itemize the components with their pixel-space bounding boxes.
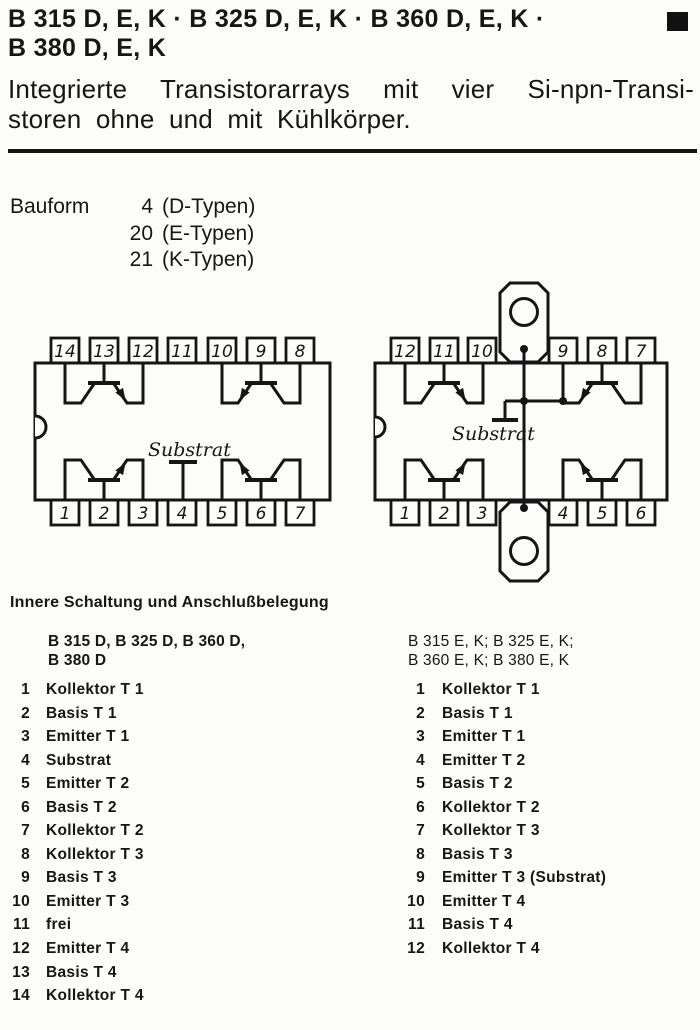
pin-number: 9 — [390, 869, 425, 887]
pinout-diagrams: 141312111098 1234567 Substrat — [0, 270, 700, 590]
bauform-block: Bauform 4 (D-Typen) 20 (E-Typen) 21 (K-T… — [10, 194, 255, 274]
pin-number: 11 — [8, 916, 30, 934]
pin-box-number: 3 — [138, 504, 149, 524]
subtitle-line-1: Integrierte Transistorarrays mit vier Si… — [8, 75, 694, 105]
heatsink-package-diagram: 121110987 123456 Substrat — [375, 283, 667, 581]
left-column-title: B 315 D, B 325 D, B 360 D, B 380 D — [48, 633, 245, 670]
pin-row: 8Kollektor T 3 — [8, 846, 144, 870]
pin-label: Basis T 2 — [442, 775, 513, 793]
pin-label: Basis T 1 — [442, 705, 513, 723]
pin-number: 12 — [8, 940, 30, 958]
pin-row: 9Emitter T 3 (Substrat) — [390, 869, 606, 893]
pin-box-number: 4 — [558, 504, 569, 524]
pin-label: Substrat — [46, 752, 111, 770]
pin-label: Emitter T 1 — [442, 728, 525, 746]
bauform-type: (E-Typen) — [162, 221, 254, 248]
pin-box-number: 3 — [477, 504, 488, 524]
title-line-2: B 380 D, E, K — [8, 34, 668, 63]
pin-box-number: 10 — [211, 342, 233, 362]
pin-label: Emitter T 3 — [46, 893, 129, 911]
pin-row: 9Basis T 3 — [8, 869, 144, 893]
pin-number: 2 — [8, 705, 30, 723]
pin-label: Kollektor T 1 — [442, 681, 540, 699]
pin-box-number: 12 — [394, 342, 416, 362]
title-line-1: B 315 D, E, K · B 325 D, E, K · B 360 D,… — [8, 5, 668, 34]
pin-assignment-list-ek-types: 1Kollektor T 12Basis T 13Emitter T 14Emi… — [390, 681, 606, 964]
pin-row: 8Basis T 3 — [390, 846, 606, 870]
pin-row: 12Emitter T 4 — [8, 940, 144, 964]
pin-number: 5 — [390, 775, 425, 793]
pin-box-number: 8 — [295, 342, 306, 362]
pin-box-number: 5 — [597, 504, 608, 524]
pin-label: Kollektor T 2 — [442, 799, 540, 817]
pin-row: 6Kollektor T 2 — [390, 799, 606, 823]
dip14-package-diagram: 141312111098 1234567 Substrat — [35, 338, 330, 525]
orientation-notch — [35, 416, 46, 438]
right-column-title-line-2: B 360 E, K; B 380 E, K — [408, 652, 574, 671]
pin-row: 1Kollektor T 1 — [8, 681, 144, 705]
pin-box-number: 7 — [295, 504, 306, 524]
pin-box-number: 1 — [400, 504, 411, 524]
pin-label: Emitter T 2 — [46, 775, 129, 793]
pin-row-top: 141312111098 — [51, 338, 314, 363]
pin-label: Basis T 2 — [46, 799, 117, 817]
pin-row: 7Kollektor T 3 — [390, 822, 606, 846]
pin-number: 5 — [8, 775, 30, 793]
bauform-row: 20 (E-Typen) — [127, 221, 255, 248]
pin-number: 3 — [390, 728, 425, 746]
pin-number: 10 — [390, 893, 425, 911]
pin-box-number: 13 — [93, 342, 115, 362]
pin-number: 4 — [390, 752, 425, 770]
pin-box-number: 10 — [471, 342, 493, 362]
section-heading: Innere Schaltung und Anschlußbelegung — [10, 594, 329, 612]
pin-number: 2 — [390, 705, 425, 723]
page-subtitle: Integrierte Transistorarrays mit vier Si… — [8, 75, 694, 134]
pin-number: 1 — [390, 681, 425, 699]
orientation-notch — [375, 417, 385, 437]
pin-row: 13Basis T 4 — [8, 964, 144, 988]
pin-number: 13 — [8, 964, 30, 982]
pin-label: Basis T 4 — [46, 964, 117, 982]
pin-row: 4Substrat — [8, 752, 144, 776]
left-column-title-line-2: B 380 D — [48, 652, 245, 671]
pin-row: 1Kollektor T 1 — [390, 681, 606, 705]
bauform-row: 4 (D-Typen) — [127, 194, 255, 221]
pin-box-number: 12 — [132, 342, 154, 362]
pin-box-number: 9 — [558, 342, 569, 362]
pin-label: Kollektor T 1 — [46, 681, 144, 699]
pin-row: 2Basis T 1 — [8, 705, 144, 729]
corner-marker — [667, 12, 688, 31]
pin-row: 6Basis T 2 — [8, 799, 144, 823]
bauform-label: Bauform — [10, 194, 127, 274]
pin-row: 3Emitter T 1 — [8, 728, 144, 752]
pin-label: Emitter T 4 — [442, 893, 525, 911]
pin-row: 7Kollektor T 2 — [8, 822, 144, 846]
pin-row: 11frei — [8, 916, 144, 940]
right-column-title-line-1: B 315 E, K; B 325 E, K; — [408, 633, 574, 652]
pin-label: Basis T 1 — [46, 705, 117, 723]
left-column-title-line-1: B 315 D, B 325 D, B 360 D, — [48, 633, 245, 652]
pin-number: 8 — [390, 846, 425, 864]
pin-label: Emitter T 1 — [46, 728, 129, 746]
pin-row: 12Kollektor T 4 — [390, 940, 606, 964]
pin-box-number: 1 — [60, 504, 71, 524]
pin-number: 7 — [390, 822, 425, 840]
bauform-rows: 4 (D-Typen) 20 (E-Typen) 21 (K-Typen) — [127, 194, 255, 274]
pin-row: 14Kollektor T 4 — [8, 987, 144, 1011]
pin-label: Kollektor T 4 — [442, 940, 540, 958]
pin-box-number: 6 — [636, 504, 647, 524]
pin-number: 8 — [8, 846, 30, 864]
pin-label: Kollektor T 3 — [46, 846, 144, 864]
pin-number: 6 — [8, 799, 30, 817]
pin-row: 4Emitter T 2 — [390, 752, 606, 776]
bauform-type: (D-Typen) — [162, 194, 255, 221]
pin-number: 4 — [8, 752, 30, 770]
pin-label: frei — [46, 916, 71, 934]
pin-box-number: 14 — [54, 342, 76, 362]
bauform-number: 4 — [127, 194, 153, 221]
pin-box-number: 9 — [256, 342, 267, 362]
pin-number: 1 — [8, 681, 30, 699]
pin-number: 9 — [8, 869, 30, 887]
pin-label: Emitter T 3 (Substrat) — [442, 869, 606, 887]
pin-box-number: 5 — [217, 504, 228, 524]
pin-label: Kollektor T 3 — [442, 822, 540, 840]
pin-row: 10Emitter T 3 — [8, 893, 144, 917]
substrate-label: Substrat — [148, 439, 231, 461]
pin-number: 7 — [8, 822, 30, 840]
right-column-title: B 315 E, K; B 325 E, K; B 360 E, K; B 38… — [408, 633, 574, 670]
pin-number: 3 — [8, 728, 30, 746]
pin-row: 2Basis T 1 — [390, 705, 606, 729]
pin-number: 14 — [8, 987, 30, 1005]
pin-box-number: 2 — [439, 504, 450, 524]
pin-box-number: 8 — [597, 342, 608, 362]
pin-row: 5Emitter T 2 — [8, 775, 144, 799]
pin-box-number: 6 — [256, 504, 267, 524]
pin-row: 11Basis T 4 — [390, 916, 606, 940]
pin-label: Emitter T 4 — [46, 940, 129, 958]
pin-box-number: 11 — [433, 342, 455, 362]
pin-row-bottom: 1234567 — [51, 500, 314, 525]
pin-box-number: 7 — [636, 342, 647, 362]
heatsink-tab-bottom — [500, 502, 548, 581]
divider-rule — [8, 149, 697, 153]
subtitle-line-2: storen ohne und mit Kühlkörper. — [8, 105, 694, 135]
pin-box-number: 11 — [171, 342, 193, 362]
pin-label: Basis T 3 — [442, 846, 513, 864]
pin-label: Kollektor T 2 — [46, 822, 144, 840]
pin-label: Basis T 4 — [442, 916, 513, 934]
substrate-label: Substrat — [452, 423, 535, 445]
datasheet-page: B 315 D, E, K · B 325 D, E, K · B 360 D,… — [0, 0, 700, 1030]
pin-label: Kollektor T 4 — [46, 987, 144, 1005]
pin-number: 12 — [390, 940, 425, 958]
pin-number: 11 — [390, 916, 425, 934]
pin-row: 5Basis T 2 — [390, 775, 606, 799]
bauform-number: 20 — [127, 221, 153, 248]
pin-number: 10 — [8, 893, 30, 911]
pin-label: Basis T 3 — [46, 869, 117, 887]
pin-assignment-list-d-types: 1Kollektor T 12Basis T 13Emitter T 14Sub… — [8, 681, 144, 1011]
pin-row: 3Emitter T 1 — [390, 728, 606, 752]
pin-box-number: 2 — [99, 504, 110, 524]
pin-box-number: 4 — [177, 504, 188, 524]
page-title: B 315 D, E, K · B 325 D, E, K · B 360 D,… — [8, 5, 668, 63]
pin-label: Emitter T 2 — [442, 752, 525, 770]
pin-number: 6 — [390, 799, 425, 817]
pin-row: 10Emitter T 4 — [390, 893, 606, 917]
